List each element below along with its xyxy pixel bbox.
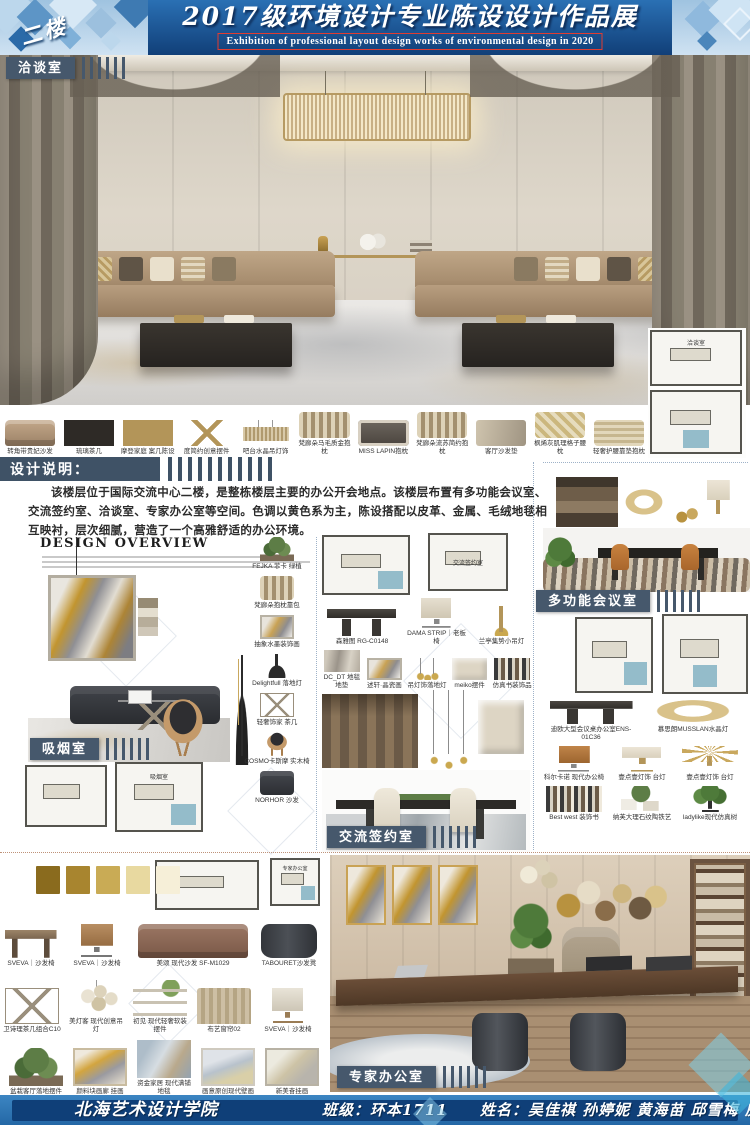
product-item: 迪欧大型会议桌办公室ENS-01C36 <box>543 698 639 742</box>
product-label: ladylike现代仿真树 <box>683 814 737 822</box>
product-label: 迪欧大型会议桌办公室ENS-01C36 <box>543 726 639 742</box>
crystal-chandelier <box>283 93 471 141</box>
laptop <box>128 690 152 704</box>
wire-table-icon <box>260 693 294 717</box>
product-label: 度简约创意摆件 <box>184 448 230 456</box>
signing-floor-plan-a <box>322 535 410 595</box>
product-label: 轻奢饰家 茶几 <box>257 719 298 727</box>
product-label: 慕思朗MUSSLAN水晶灯 <box>658 726 728 734</box>
product-label: 枫烯灰肌理格子腰枕 <box>532 440 588 456</box>
gray-stool <box>570 1013 626 1071</box>
poster-title: 2017级环境设计专业陈设设计作品展 <box>148 3 672 31</box>
product-item: 卫诗理茶几组合C10 <box>2 988 62 1034</box>
conference-table-icon <box>326 606 398 636</box>
swivel-chair-icon <box>69 924 125 958</box>
signing-room-product-row: 森雅图 RG-C0148 DAMA STRIP｜老板椅 兰亭集势小吊灯 <box>322 596 532 646</box>
stand-icon <box>182 420 232 446</box>
product-label: 轻奢护腰靠垫抱枕 <box>593 448 645 456</box>
product-item: DAMA STRIP｜老板椅 <box>406 598 467 646</box>
product-item: meiko摆件 <box>450 658 490 690</box>
chair-tan-icon <box>546 746 602 772</box>
product-item: COSMO卡斯摩 实木椅 <box>237 732 317 766</box>
cushion-icon <box>476 420 526 446</box>
gold-disc-wall-art <box>555 877 667 929</box>
smoking-floor-plan-a <box>25 765 107 827</box>
color-palette <box>36 866 196 896</box>
negotiation-room-photo <box>0 55 750 405</box>
product-item: 客厅沙发垫 <box>473 420 529 456</box>
product-label: 科尔卡诺 现代办公椅 <box>544 774 604 782</box>
exec-chair-icon <box>409 598 464 628</box>
plant-decor <box>545 534 575 578</box>
product-item: FEJKA 菲卡 绿植 <box>237 537 317 571</box>
product-item: 吧台水晶吊灯饰 <box>238 420 294 456</box>
product-item: SVEVA｜沙发椅 <box>66 924 128 968</box>
product-label: 画意原创现代壁画 <box>202 1088 254 1096</box>
product-label: 壹点壹灯饰 台灯 <box>686 774 733 782</box>
plant-icon <box>260 537 294 561</box>
product-label: 摩登家庭 案几陈设 <box>121 448 175 456</box>
footer-band: 北海艺术设计学院 班级：环本1711 姓名：吴佳祺 孙婷妮 黄海苗 邱雪梅 房钊… <box>0 1095 750 1125</box>
product-label: TABOURET沙发凳 <box>262 960 316 968</box>
product-item: 轻奢饰家 茶几 <box>237 693 317 727</box>
footer-panel: 北海艺术设计学院 班级：环本1711 姓名：吴佳祺 孙婷妮 黄海苗 邱雪梅 房钊… <box>12 1100 738 1121</box>
shelf-decor-icon <box>133 980 187 1016</box>
product-label: 琉璃茶几 <box>76 448 102 456</box>
signing-floor-plan-b: 交流签约室 <box>428 533 508 591</box>
smoking-floor-plan-b: 吸烟室 <box>115 762 203 832</box>
product-item: Best west 装饰书 <box>543 786 605 822</box>
product-label: 美颂 现代沙发 SF-M1029 <box>157 960 230 968</box>
gold-art-frame <box>346 865 386 925</box>
pillow-tassel-icon <box>594 420 644 446</box>
sculpture-decor <box>360 232 386 252</box>
product-label: 卫诗理茶几组合C10 <box>3 1026 60 1034</box>
product-item: 美灯客 现代创意吊灯 <box>66 980 126 1034</box>
ring-chandelier-decor <box>622 487 666 517</box>
product-item: 轻奢护腰靠垫抱枕 <box>591 420 647 456</box>
plant-frames-icon <box>614 786 670 812</box>
product-item: 森雅图 RG-C0148 <box>322 606 402 646</box>
sofa-dark-icon <box>260 771 294 795</box>
conference-table-icon <box>548 698 634 724</box>
product-item: 布艺窗帘02 <box>194 988 254 1034</box>
expert-office-label: 专家办公室 <box>337 1066 436 1088</box>
product-label: COSMO卡斯摩 实木椅 <box>244 758 309 766</box>
signing-room-label: 交流签约室 <box>327 826 426 848</box>
product-item: SVEVA｜沙发椅 <box>0 924 62 968</box>
color-swatch <box>126 866 150 894</box>
desk-icon <box>3 924 59 958</box>
ring-chandelier-icon <box>650 698 736 724</box>
product-item: 慕思朗MUSSLAN水晶灯 <box>645 698 741 742</box>
color-swatch <box>36 866 60 894</box>
left-curtain <box>0 55 98 405</box>
product-label: 壹点壹灯饰 台灯 <box>618 774 665 782</box>
orange-chair <box>681 544 699 570</box>
wire-table-icon <box>5 988 59 1024</box>
meeting-floor-plan-b <box>662 614 748 694</box>
product-item: MISS LAPIN抱枕 <box>355 420 411 456</box>
product-item: 兰亭集势小吊灯 <box>471 606 532 646</box>
product-label: 纳芙大理石纹陶铁艺 <box>613 814 672 822</box>
product-label: 吊灯饰落地灯 <box>407 682 446 690</box>
product-item: 吊灯饰落地灯 <box>407 658 447 690</box>
product-label: 颜料块画廊 挂画 <box>76 1088 123 1096</box>
expert-office-product-row1: SVEVA｜沙发椅 SVEVA｜沙发椅 美颂 现代沙发 SF-M1029 TAB… <box>0 898 330 968</box>
product-item: NORHOR 沙发 <box>237 771 317 805</box>
product-label: 抽象水墨装饰画 <box>254 641 300 649</box>
product-label: 梵廊朵流苏简约抱枕 <box>414 440 470 456</box>
smoking-room-label: 吸烟室 <box>30 738 99 760</box>
product-item: 摩登家庭 案几陈设 <box>120 420 176 456</box>
product-item: 新美奋挂画 <box>262 1048 322 1096</box>
abstract-artwork <box>48 575 136 661</box>
product-item: 科尔卡诺 现代办公椅 <box>543 746 605 782</box>
product-item: ladylike现代仿真树 <box>679 786 741 822</box>
sofa-corner-icon <box>5 420 55 446</box>
product-item: 度简约创意摆件 <box>179 420 235 456</box>
product-label: NORHOR 沙发 <box>255 797 299 805</box>
material-swatch-stack <box>138 598 158 636</box>
tree-icon <box>682 786 738 812</box>
product-item: 画意原创现代壁画 <box>198 1048 258 1096</box>
color-swatch <box>96 866 120 894</box>
product-item: 抽象水墨装饰画 <box>237 615 317 649</box>
chair-icon <box>260 732 294 756</box>
gold-art-frame <box>392 865 432 925</box>
glass-chandelier-icon <box>69 980 123 1016</box>
expert-office-photo <box>330 855 750 1092</box>
product-label: FEJKA 菲卡 绿植 <box>252 563 301 571</box>
interior-reference-photo <box>322 694 418 768</box>
stool-icon <box>261 924 317 958</box>
product-label: SVEVA｜沙发椅 <box>73 960 120 968</box>
color-swatch <box>156 866 180 894</box>
sofa-seat <box>70 285 335 317</box>
console-icon <box>123 420 173 446</box>
relief-artwork <box>478 700 524 754</box>
sofa-seat <box>415 285 680 317</box>
art-frame-icon <box>265 1048 319 1086</box>
curtain-icon <box>197 988 251 1024</box>
signing-table <box>336 800 516 809</box>
product-label: 仿真书装饰品 <box>493 682 532 690</box>
meeting-room-photo <box>556 477 618 527</box>
rug-icon <box>324 650 360 672</box>
design-notes-heading: 设计说明： <box>0 457 160 481</box>
product-label: DAMA STRIP｜老板椅 <box>406 630 467 646</box>
meeting-room-product-grid: 迪欧大型会议桌办公室ENS-01C36 慕思朗MUSSLAN水晶灯 科尔卡诺 现… <box>543 698 750 846</box>
plan-room-text: 洽谈室 <box>652 338 740 347</box>
product-item: 美颂 现代沙发 SF-M1029 <box>132 924 254 968</box>
plant-icon <box>9 1048 63 1086</box>
product-label: SVEVA｜沙发椅 <box>7 960 54 968</box>
product-item: 壹点壹灯饰 台灯 <box>679 746 741 782</box>
sofa-pillows <box>88 257 236 281</box>
product-item: 初见 现代轻奢软装摆件 <box>130 980 190 1034</box>
product-item: 梵廊朵流苏简约抱枕 <box>414 412 470 456</box>
smoking-room-product-list: FEJKA 菲卡 绿植 梵廊朵抱枕靠包 抽象水墨装饰画 Delightfull … <box>237 537 317 827</box>
plan-room-text: 专家办公室 <box>272 865 318 872</box>
coffee-table <box>140 323 292 367</box>
art-gold-icon <box>73 1048 127 1086</box>
product-item: 述轩·晶瓷画 <box>365 658 405 690</box>
header-title-panel: 2017级环境设计专业陈设设计作品展 Exhibition of profess… <box>148 0 672 55</box>
expert-office-product-row2: 卫诗理茶几组合C10 美灯客 现代创意吊灯 初见 现代轻奢软装摆件 布艺窗帘02… <box>2 972 330 1034</box>
product-label: 资金家居 现代满铺地毯 <box>134 1080 194 1096</box>
product-label: 吧台水晶吊灯饰 <box>243 448 289 456</box>
product-item: 梵廊朵马毛质金抱枕 <box>297 412 353 456</box>
product-item: SVEVA｜沙发椅 <box>258 988 318 1034</box>
negotiation-floor-plan: 洽谈室 <box>650 330 742 386</box>
product-label: 初见 现代轻奢软装摆件 <box>130 1018 190 1034</box>
product-item: 壹点壹灯饰 台灯 <box>611 746 673 782</box>
meeting-floor-plan-a <box>575 617 653 693</box>
floor-lamp-icon <box>260 654 294 678</box>
heading-stripes-decor <box>168 457 278 481</box>
pillow-icon <box>260 576 294 600</box>
product-label: 述轩·晶瓷画 <box>367 682 402 690</box>
art-icon <box>367 658 403 680</box>
product-item: 颜料块画廊 挂画 <box>70 1048 130 1096</box>
plan-room-text: 交流签约室 <box>430 558 506 567</box>
orange-chair <box>611 544 629 570</box>
product-label: 客厅沙发垫 <box>485 448 518 456</box>
coffee-table <box>462 323 614 367</box>
product-label: 森雅图 RG-C0148 <box>336 638 388 646</box>
product-label: MISS LAPIN抱枕 <box>359 448 408 456</box>
rod-lamp-icon <box>474 606 529 636</box>
design-overview-title: DESIGN OVERVIEW <box>40 536 209 551</box>
product-label: 转角带贵妃沙发 <box>7 448 53 456</box>
pillow-dark-icon <box>358 420 408 446</box>
pillow-icon <box>299 412 349 438</box>
product-label: 盆栽客厅落地摆件 <box>10 1088 62 1096</box>
product-label: meiko摆件 <box>454 682 484 690</box>
poster-subtitle: Exhibition of professional layout design… <box>218 33 603 50</box>
product-item: Delightfull 落地灯 <box>237 654 317 688</box>
row-separator <box>543 462 748 463</box>
table-lamp-icon <box>614 746 670 772</box>
pillow-icon <box>417 412 467 438</box>
table-lamp-decor <box>703 479 733 527</box>
product-item: 资金家居 现代满铺地毯 <box>134 1040 194 1096</box>
school-name: 北海艺术设计学院 <box>74 1100 218 1121</box>
product-label: 布艺窗帘02 <box>207 1026 240 1034</box>
books-icon <box>546 786 602 812</box>
negotiation-room-label: 洽谈室 <box>6 57 75 79</box>
product-label: 兰亭集势小吊灯 <box>479 638 525 646</box>
gold-bird-figurines <box>674 505 700 527</box>
sofa-pillows <box>514 257 662 281</box>
books-icon <box>494 658 530 680</box>
art-icon <box>260 615 294 639</box>
sofa-brown-icon <box>138 924 248 958</box>
product-item: 梵廊朵抱枕靠包 <box>237 576 317 610</box>
floor-plan-card: 洽谈室 <box>648 328 746 458</box>
color-swatch <box>66 866 90 894</box>
plan-room-text: 吸烟室 <box>117 772 201 781</box>
student-names: 姓名：吴佳祺 孙婷妮 黄海苗 邱雪梅 房钊龙 <box>480 1100 750 1121</box>
product-label: SVEVA｜沙发椅 <box>264 1026 311 1034</box>
product-item: DC_DT 地毯地垫 <box>322 650 362 690</box>
product-item: TABOURET沙发凳 <box>258 924 320 968</box>
product-label: 梵廊朵马毛质金抱枕 <box>297 440 353 456</box>
expert-office-product-row3: 盆栽客厅落地摆件 颜料块画廊 挂画 资金家居 现代满铺地毯 画意原创现代壁画 新… <box>6 1036 328 1096</box>
curtain-swag <box>470 55 680 97</box>
palm-lamp-icon <box>682 746 738 772</box>
header-band: 2017级环境设计专业陈设设计作品展 Exhibition of profess… <box>0 0 750 55</box>
signing-room-caption-row: DC_DT 地毯地垫 述轩·晶瓷画 吊灯饰落地灯 meiko摆件 仿真书装饰品 <box>322 648 532 690</box>
product-label: Delightfull 落地灯 <box>252 680 302 688</box>
pendant-lights-decor <box>426 690 472 770</box>
exhibition-poster: 2017级环境设计专业陈设设计作品展 Exhibition of profess… <box>0 0 750 1125</box>
meeting-desk-photo <box>543 528 750 592</box>
product-label: 梵廊朵抱枕靠包 <box>254 602 300 610</box>
product-item: 枫烯灰肌理格子腰枕 <box>532 412 588 456</box>
meeting-room-label: 多功能会议室 <box>536 590 650 612</box>
bar-chandelier-icon <box>240 420 290 446</box>
section-separator <box>0 852 750 853</box>
rug-blue-icon <box>137 1040 191 1078</box>
product-label: DC_DT 地毯地垫 <box>322 674 362 690</box>
product-label: 美灯客 现代创意吊灯 <box>66 1018 126 1034</box>
gold-art-frame <box>438 865 478 925</box>
office-plant <box>508 901 554 981</box>
product-item: 琉璃茶几 <box>61 420 117 456</box>
product-item: 纳芙大理石纹陶铁艺 <box>611 786 673 822</box>
product-label: 新美奋挂画 <box>276 1088 309 1096</box>
chair-white-icon <box>261 988 315 1024</box>
art-abstract-icon <box>201 1048 255 1086</box>
pendants-icon <box>409 658 445 680</box>
product-item: 盆栽客厅落地摆件 <box>6 1048 66 1096</box>
coffee-table-icon <box>64 420 114 446</box>
product-label: Best west 装饰书 <box>549 814 598 822</box>
gray-stool <box>472 1013 528 1071</box>
product-item: 仿真书装饰品 <box>492 658 532 690</box>
relief-icon <box>452 658 488 680</box>
shell-chair <box>152 698 214 756</box>
pillow-gold-icon <box>535 412 585 438</box>
product-item: 转角带贵妃沙发 <box>2 420 58 456</box>
overall-floor-plan <box>650 390 742 454</box>
hero-product-strip: 转角带贵妃沙发 琉璃茶几 摩登家庭 案几陈设 度简约创意摆件 吧台水晶吊灯饰 梵… <box>2 406 647 456</box>
column-separator <box>533 462 534 850</box>
